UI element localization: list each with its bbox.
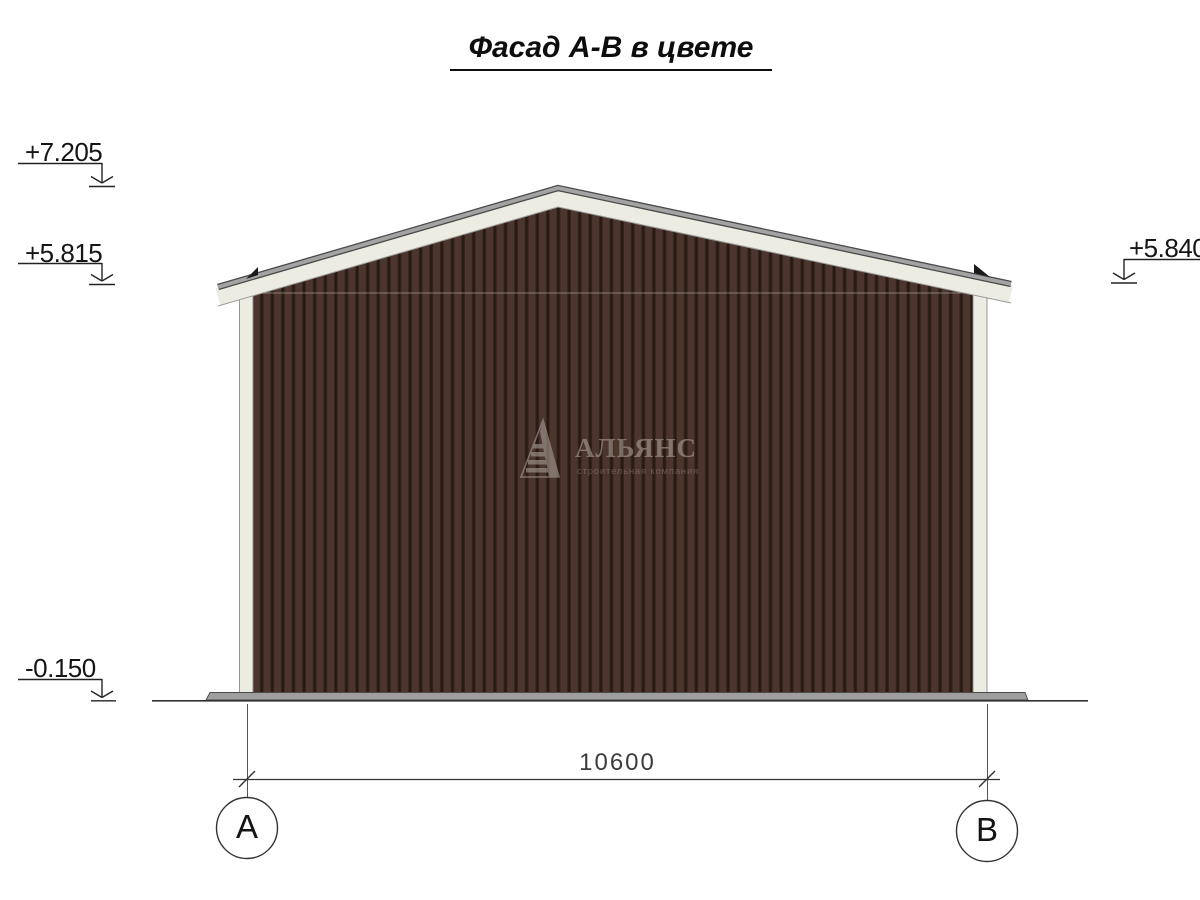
axis-label-b: В [956, 800, 1018, 862]
drawing-title: Фасад А-В в цвете [450, 31, 772, 71]
watermark-company-name: АЛЬЯНС [575, 433, 697, 464]
elevation-label-eave-right: +5.840 [1129, 233, 1200, 264]
axis-label-a: А [216, 797, 278, 859]
elevation-label-ridge: +7.205 [25, 137, 102, 168]
facade-drawing-sheet: Фасад А-В в цвете +7.205 +5.815 -0.150 +… [0, 0, 1200, 900]
elevation-label-ground: -0.150 [25, 653, 96, 684]
dimension-chain [217, 704, 1018, 862]
dimension-value: 10600 [555, 749, 680, 777]
base-plinth [206, 693, 1028, 701]
corner-trim-left [240, 285, 254, 693]
corner-trim-right [973, 284, 987, 693]
watermark-tagline: строительная компания [577, 466, 699, 477]
elevation-label-eave-left: +5.815 [25, 238, 102, 269]
